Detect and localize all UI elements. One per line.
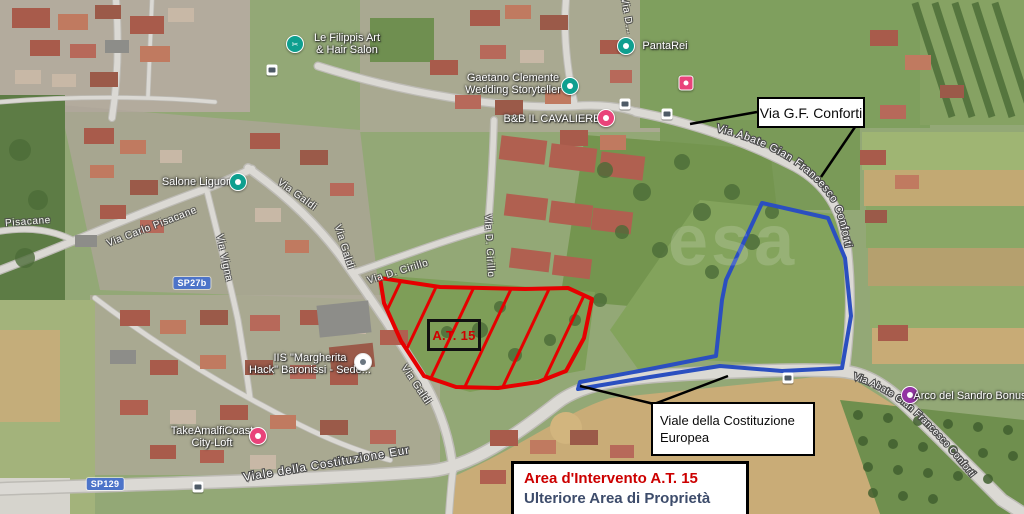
viale-callout-line2: Europea <box>660 429 709 446</box>
viale-callout-line1: Viale della Costituzione <box>660 412 795 429</box>
poi-city-loft: TakeAmalfiCoast City-Loft <box>171 425 254 449</box>
poi-school-line2: Hack" Baronissi - Sede... <box>249 364 371 376</box>
poi-hair-salon: Le Filippis Art & Hair Salon <box>314 32 380 56</box>
poi-hair-salon-line2: & Hair Salon <box>314 44 380 56</box>
poi-wedding-line2: Wedding Storyteller <box>465 84 561 96</box>
poi-salone-liguori: Salone Liguori <box>162 176 232 188</box>
route-badge-sp27b: SP27b <box>173 277 210 289</box>
bus-stop-icon <box>620 99 631 110</box>
beauty-salon-icon <box>229 173 247 191</box>
poi-city-loft-line2: City-Loft <box>171 437 254 449</box>
route-badge-sp129: SP129 <box>87 478 124 490</box>
school-icon <box>354 353 372 371</box>
bus-stop-icon <box>662 109 673 120</box>
bus-stop-icon <box>783 373 794 384</box>
poi-pantarei: PantaRei <box>642 40 687 52</box>
annotated-satellite-map: Viale della Costituzione Europea Via Aba… <box>0 0 1024 514</box>
poi-arco-sandro-bonus: Arco del Sandro Bonus <box>913 390 1024 402</box>
via-conforti-callout: Via G.F. Conforti <box>757 97 865 128</box>
pantarei-icon <box>617 37 635 55</box>
hair-salon-icon: ✂ <box>286 35 304 53</box>
bus-stop-icon <box>267 65 278 76</box>
hotel-icon <box>597 109 615 127</box>
poi-wedding-line1: Gaetano Clemente <box>465 72 561 84</box>
poi-hair-salon-line1: Le Filippis Art <box>314 32 380 44</box>
poi-school: IIS "Margherita Hack" Baronissi - Sede..… <box>249 352 371 376</box>
at15-label-box: A.T. 15 <box>427 319 481 351</box>
viale-costituzione-callout: Viale della Costituzione Europea <box>651 402 815 456</box>
at15-label: A.T. 15 <box>432 328 475 343</box>
poi-wedding-storyteller: Gaetano Clemente Wedding Storyteller <box>465 72 561 96</box>
legend-intervention-area: Area d'Intervento A.T. 15 <box>524 469 736 489</box>
poi-city-loft-line1: TakeAmalfiCoast <box>171 425 254 437</box>
poi-bnb-cavaliere: B&B IL CAVALIERE <box>503 113 600 125</box>
legend-property-area: Ulteriore Area di Proprietà <box>524 489 736 509</box>
shopping-icon <box>679 76 694 91</box>
lodging-icon <box>249 427 267 445</box>
bus-stop-icon <box>193 482 204 493</box>
legend: Area d'Intervento A.T. 15 Ulteriore Area… <box>511 461 749 514</box>
photographer-icon <box>561 77 579 95</box>
poi-school-line1: IIS "Margherita <box>249 352 371 364</box>
